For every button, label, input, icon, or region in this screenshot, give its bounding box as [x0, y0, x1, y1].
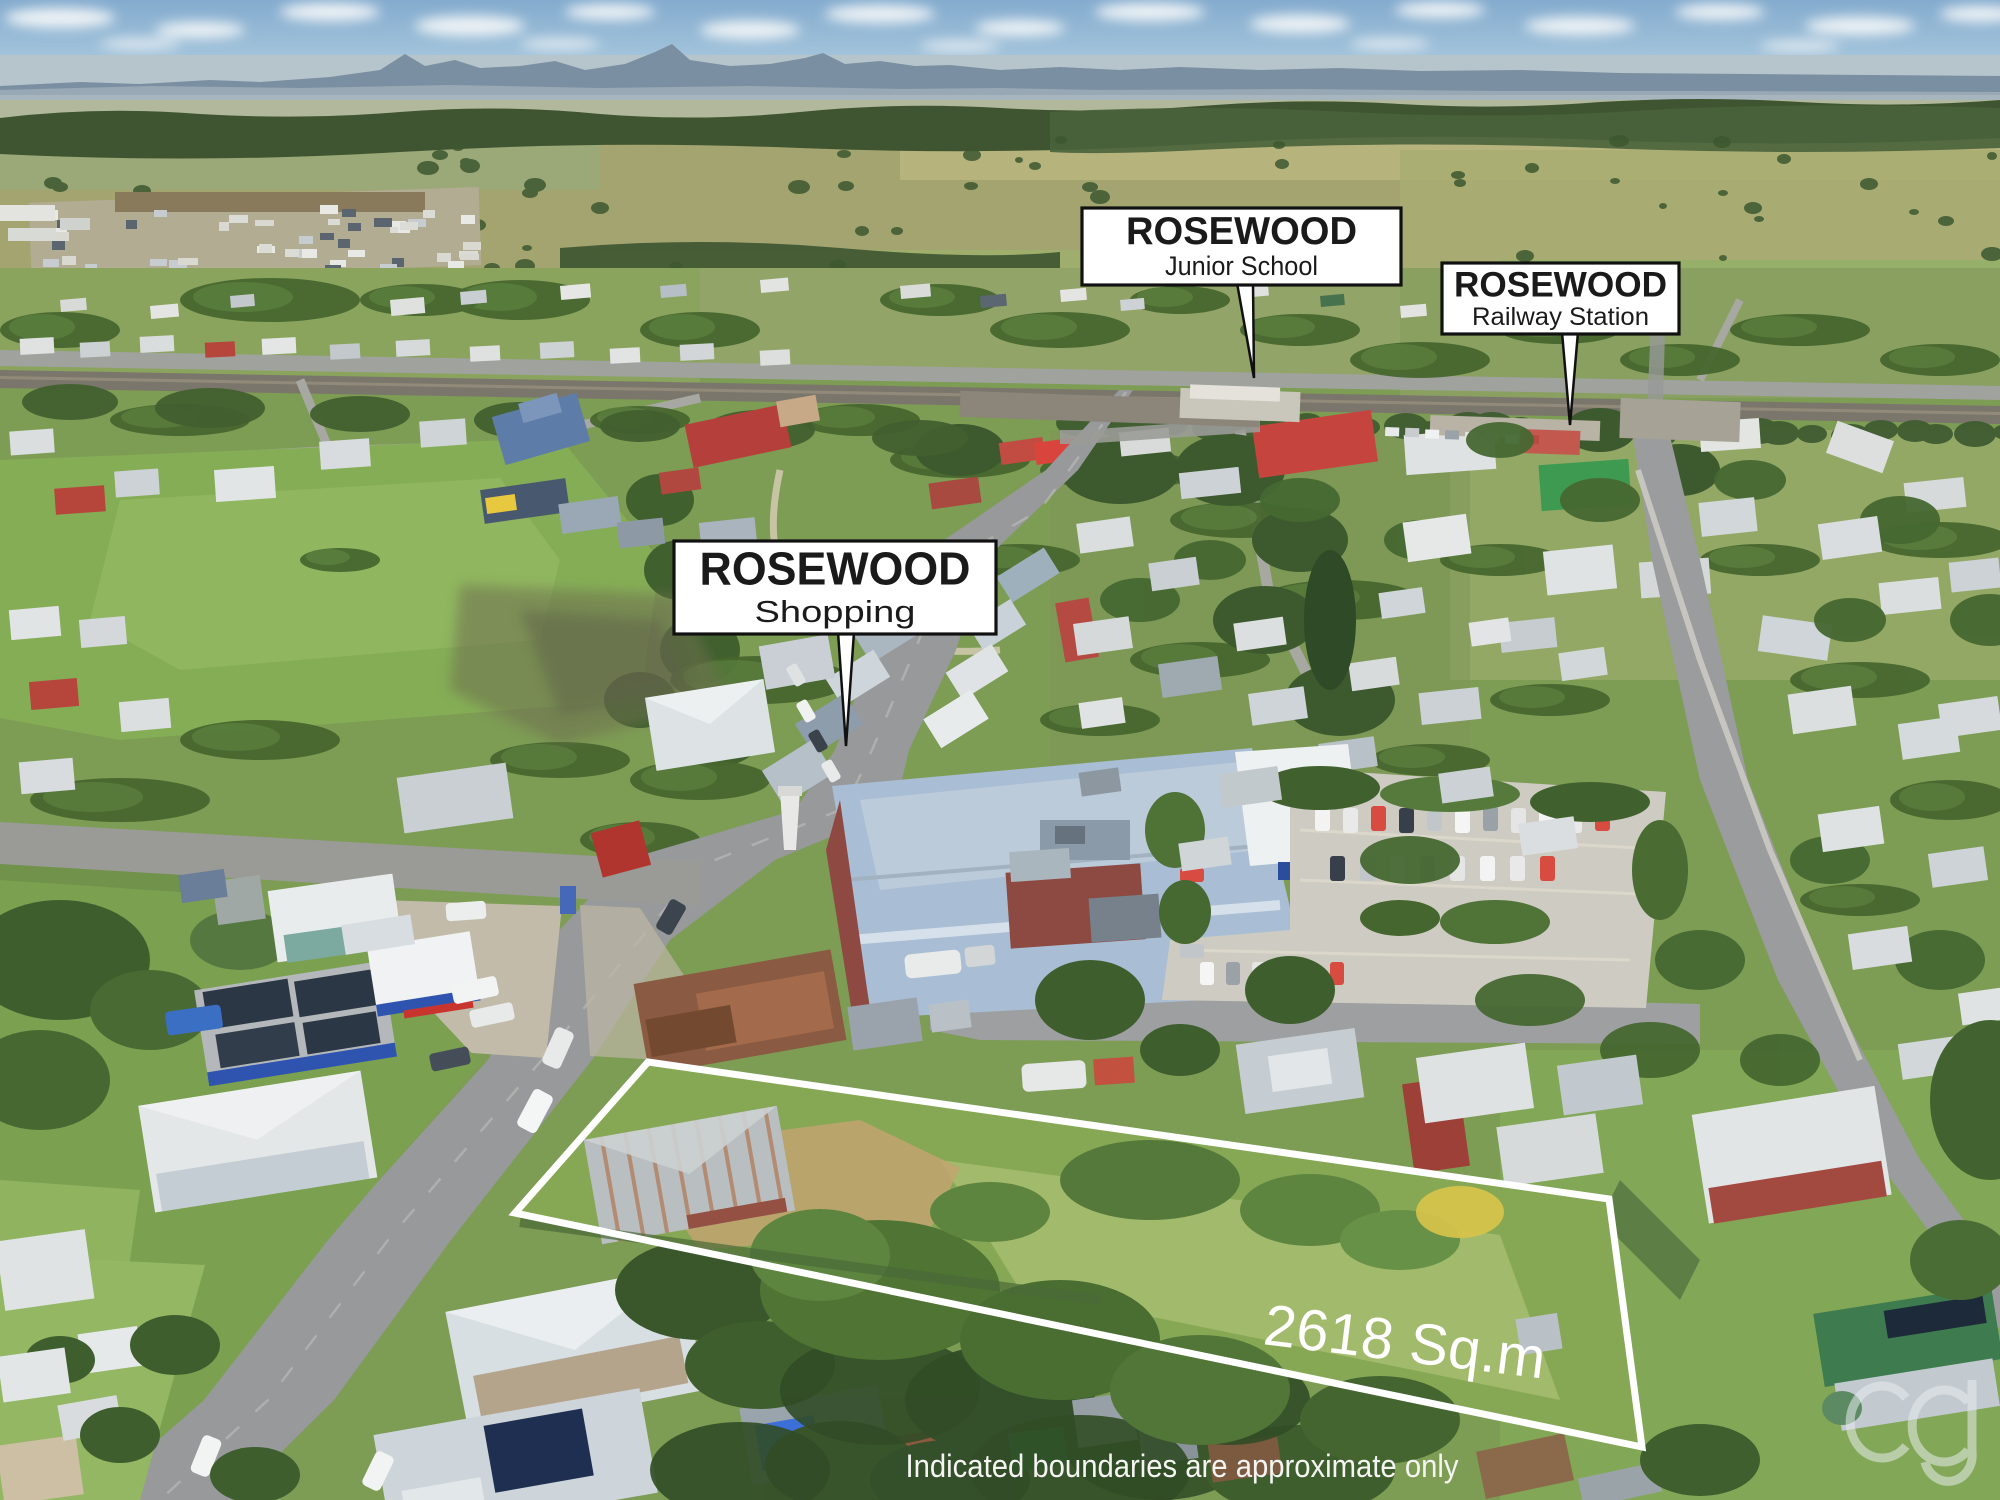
svg-text:Indicated boundaries are appro: Indicated boundaries are approximate onl…: [906, 1448, 1459, 1484]
svg-text:ROSEWOOD: ROSEWOOD: [1126, 210, 1357, 253]
svg-text:Junior School: Junior School: [1165, 251, 1318, 281]
svg-text:ROSEWOOD: ROSEWOOD: [1454, 265, 1667, 304]
svg-text:ROSEWOOD: ROSEWOOD: [700, 543, 971, 595]
svg-text:Railway Station: Railway Station: [1472, 303, 1649, 331]
svg-text:Shopping: Shopping: [755, 594, 916, 629]
